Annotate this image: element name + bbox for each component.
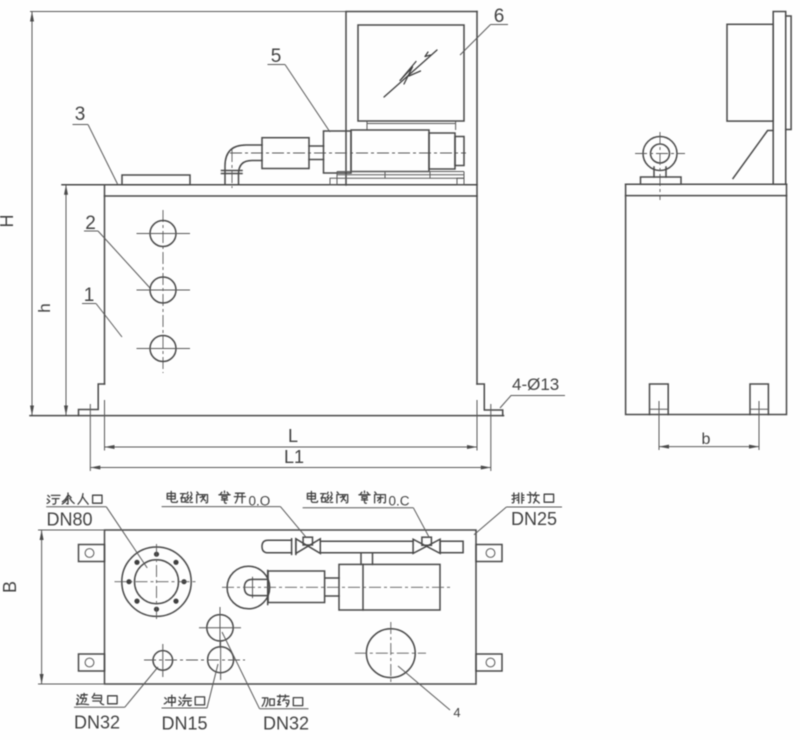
svg-text:h: h [35,303,54,312]
svg-text:0.C: 0.C [389,494,410,509]
svg-text:6: 6 [494,6,505,27]
svg-text:L1: L1 [284,447,304,467]
svg-text:DN15: DN15 [162,714,208,734]
svg-text:DN32: DN32 [263,714,309,734]
svg-text:H: H [0,215,17,228]
svg-text:3: 3 [75,104,86,125]
svg-text:4: 4 [453,705,460,720]
svg-text:DN32: DN32 [74,713,120,733]
svg-text:4-Ø13: 4-Ø13 [512,375,559,394]
svg-text:DN25: DN25 [511,509,557,529]
svg-text:b: b [702,431,711,448]
svg-text:L: L [288,426,298,446]
svg-text:B: B [0,581,20,593]
svg-text:DN80: DN80 [47,510,93,530]
svg-text:1: 1 [84,285,95,306]
svg-text:5: 5 [271,46,282,67]
